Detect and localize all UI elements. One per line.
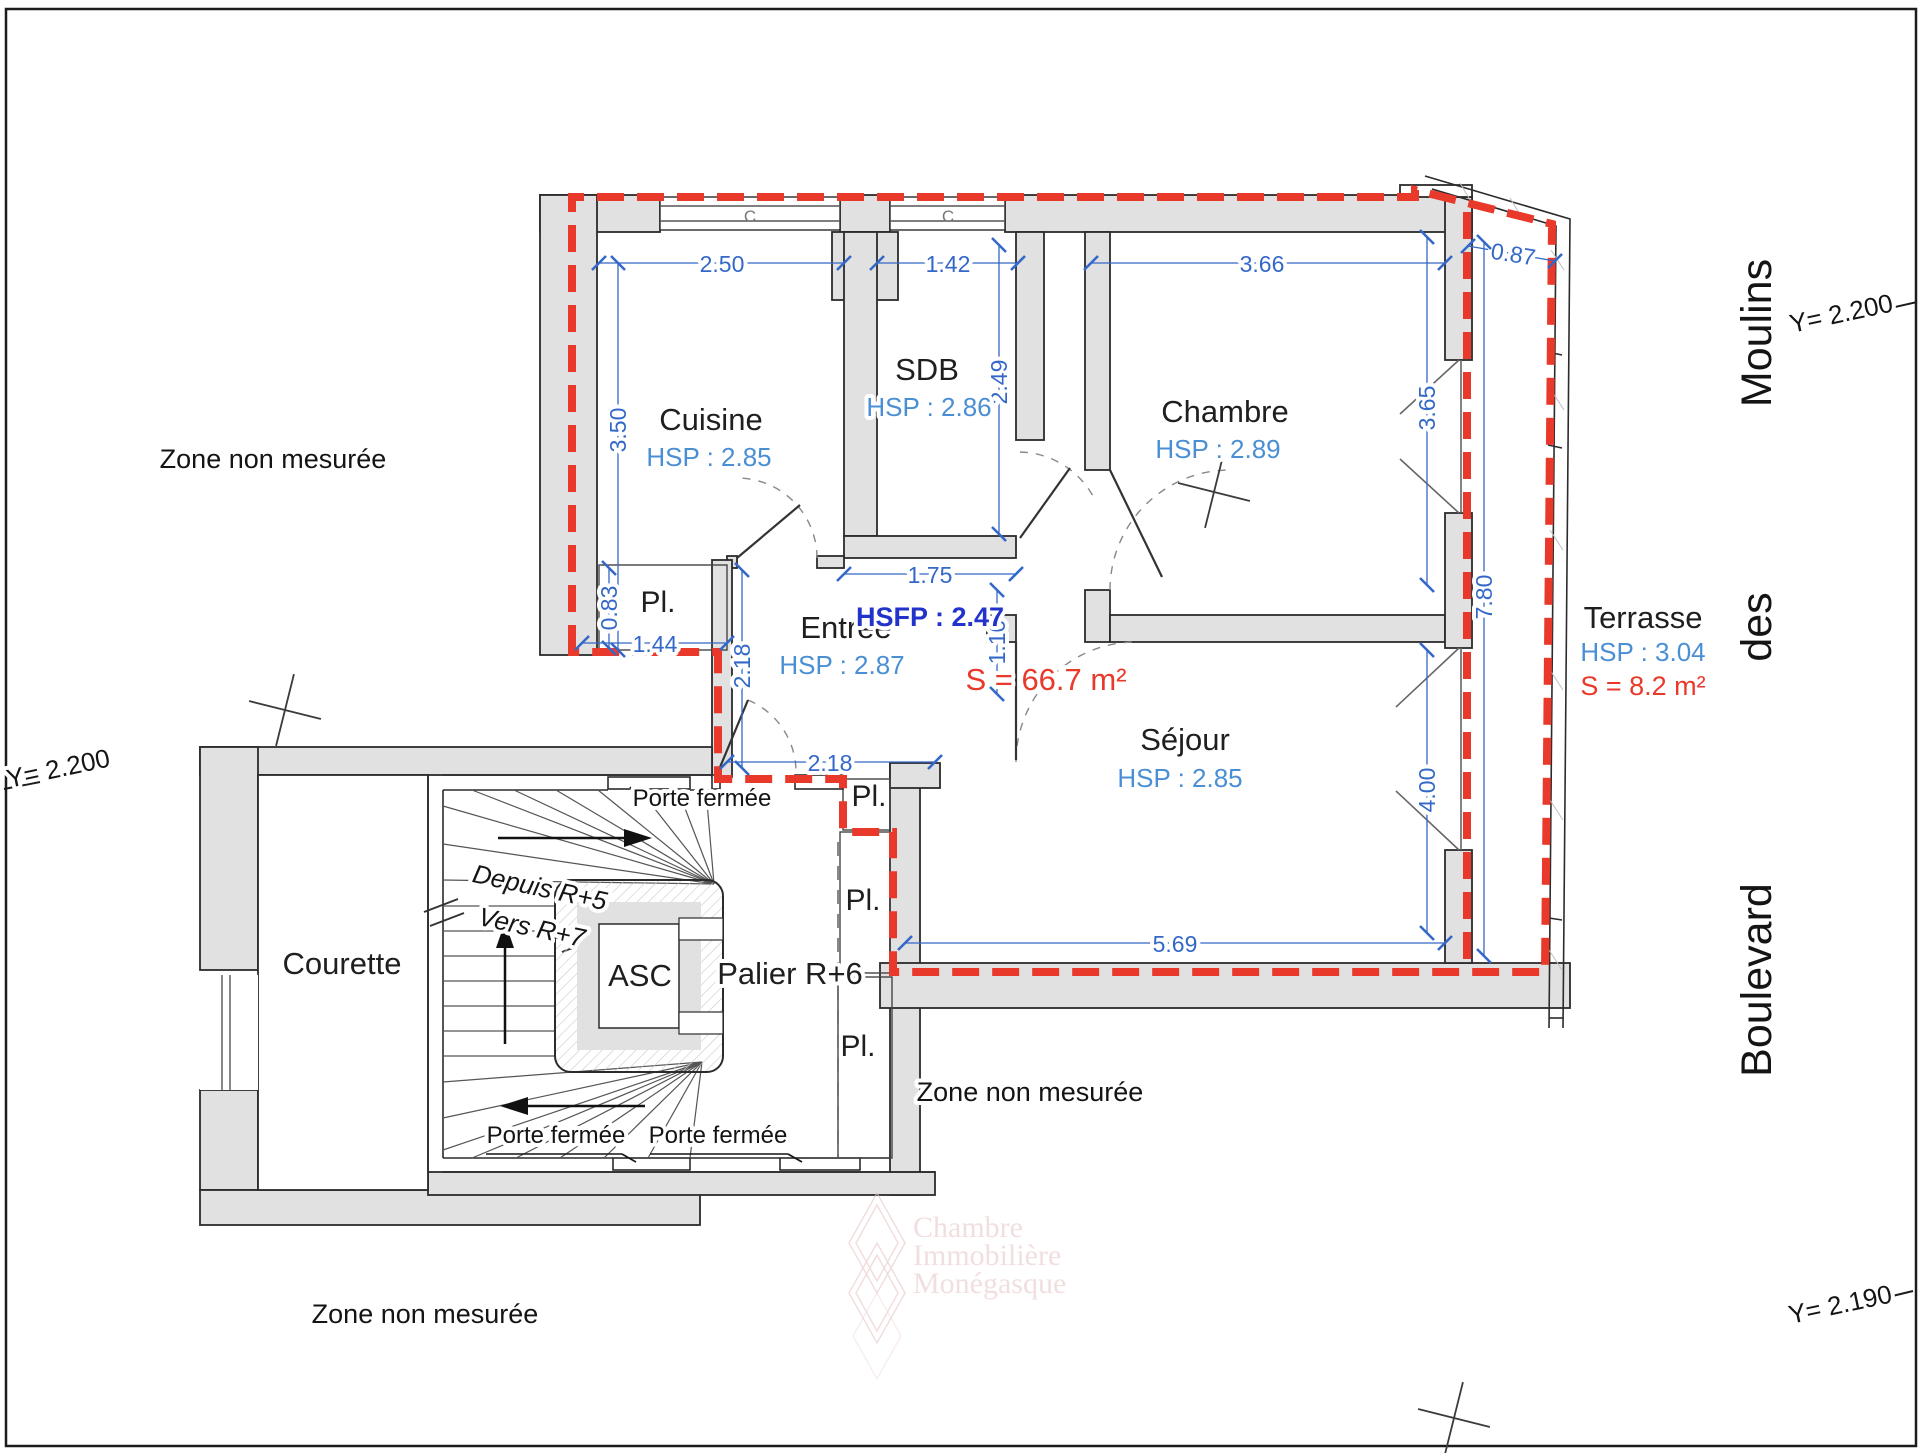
closed-door-label: Porte fermée (487, 1122, 626, 1149)
dimension-value: 2.18 (808, 750, 853, 776)
street-name: Moulins (1733, 259, 1781, 407)
dimension-value: 3.66 (1240, 251, 1285, 277)
dimension: 2.50 (592, 251, 851, 277)
room-ceiling-height: HSP : 2.86 (866, 392, 991, 422)
unmeasured-zone-label: Zone non mesurée (917, 1077, 1144, 1107)
dimension-value: 1.75 (908, 562, 953, 588)
room-name: Cuisine (659, 402, 762, 437)
terrace-area: S = 8.2 m² (1580, 671, 1705, 701)
svg-text:C: C (942, 207, 954, 226)
svg-text:C: C (744, 207, 756, 226)
survey-marker-label: Y= 2.200 (1787, 288, 1896, 339)
room-label-group: SDBHSP : 2.86 (866, 352, 991, 422)
closet-label: Pl. (840, 1030, 875, 1063)
dimension-value: 2.50 (700, 251, 745, 277)
room-name: Palier R+6 (717, 956, 863, 991)
room-label-group: CuisineHSP : 2.85 (646, 402, 771, 472)
room-label-group: Courette (283, 946, 402, 981)
street-name: Boulevard (1733, 883, 1781, 1077)
closet-label: Pl. (851, 780, 886, 813)
closed-door-label: Porte fermée (633, 785, 772, 812)
dimension: 7.80 (1471, 235, 1497, 963)
street-name: des (1733, 592, 1781, 661)
dimension-value: 3.50 (605, 408, 631, 453)
floor-plan-canvas: C C (0, 0, 1920, 1453)
room-name: Séjour (1140, 722, 1230, 757)
dimension: 1.75 (837, 562, 1023, 588)
room-name: Terrasse (1584, 600, 1703, 635)
room-ceiling-height: HSP : 3.04 (1580, 637, 1705, 667)
room-name: Courette (283, 946, 402, 981)
false-ceiling-height: HSFP : 2.47 (856, 602, 1004, 632)
dimension-value: 1.44 (633, 631, 678, 657)
room-ceiling-height: HSP : 2.85 (1117, 763, 1242, 793)
dimension-value: 4.00 (1414, 768, 1440, 813)
dimension: 2.18 (729, 563, 755, 775)
dimension-value: 3.65 (1414, 386, 1440, 431)
room-label-group: TerrasseHSP : 3.04 (1580, 600, 1705, 667)
room-name: Chambre (1161, 394, 1289, 429)
closed-door-label: Porte fermée (649, 1122, 788, 1149)
watermark-text: Monégasque (913, 1267, 1066, 1300)
closet-label: Pl. (640, 586, 675, 619)
dimension: 2.49 (986, 238, 1012, 541)
room-label-group: ChambreHSP : 2.89 (1155, 394, 1288, 464)
room-label-group: SéjourHSP : 2.85 (1117, 722, 1242, 793)
unmeasured-zone-label: Zone non mesurée (160, 444, 387, 474)
dimension-value: 2.18 (729, 644, 755, 689)
dimension-value: 1.42 (926, 251, 971, 277)
survey-marker-label: Y= 2.200 (4, 743, 113, 794)
dimension-value: 5.69 (1153, 931, 1198, 957)
room-name: SDB (895, 352, 959, 387)
closet-label: Pl. (845, 884, 880, 917)
floor-plan-page: C C (0, 0, 1920, 1453)
apartment-area: S = 66.7 m² (965, 662, 1126, 697)
dimension: 3.65 (1414, 230, 1440, 592)
room-label-group: Palier R+6 (717, 956, 863, 991)
room-ceiling-height: HSP : 2.89 (1155, 434, 1280, 464)
room-ceiling-height: HSP : 2.85 (646, 442, 771, 472)
room-name: ASC (608, 958, 672, 993)
survey-marker-label: Y= 2.190 (1786, 1279, 1895, 1330)
watermark-logo-icon (849, 1193, 905, 1379)
room-label-group: ASC (608, 958, 672, 993)
dimension: 3.66 (1084, 251, 1452, 277)
unmeasured-zone-label: Zone non mesurée (312, 1299, 539, 1329)
dimension-value: 0.83 (596, 586, 622, 631)
room-ceiling-height: HSP : 2.87 (779, 650, 904, 680)
dimension: 5.69 (898, 931, 1452, 957)
dimension-value: 0.87 (1489, 238, 1537, 271)
dimension: 0.87 (1461, 238, 1562, 271)
dimension-value: 7.80 (1471, 575, 1497, 620)
